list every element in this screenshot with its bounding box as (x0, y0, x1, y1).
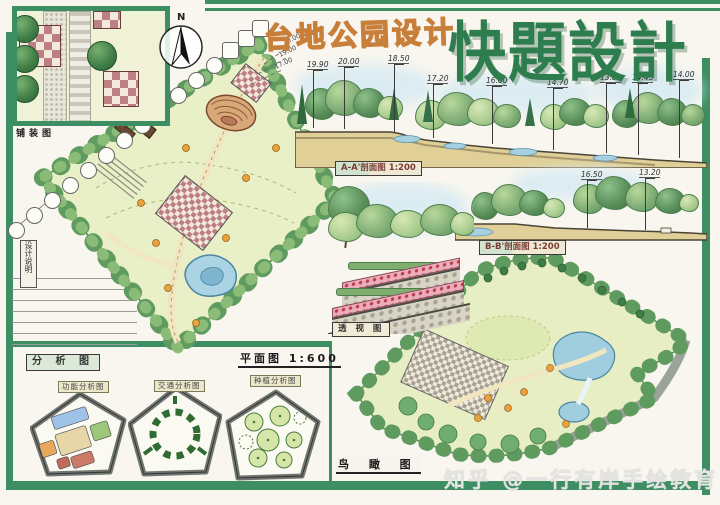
elevation-value: 16.50 (581, 170, 602, 180)
function-analysis-label: 功能分析图 (58, 381, 109, 393)
elevation-value: 20.00 (338, 57, 359, 67)
compass-n-label: N (177, 12, 185, 23)
traffic-analysis-diagram (128, 386, 222, 480)
elevation-marker: 18.50 (394, 64, 395, 132)
design-notes-label: 设计说明 (20, 240, 37, 288)
design-sheet: 20.00 19.00 17.00 铺装图 N 台地公园设计 快題設計 (0, 0, 720, 505)
elevation-marker: 16.00 (492, 86, 493, 144)
birdseye-label: 鸟 瞰 图 (336, 456, 421, 474)
section-b-label: B-B'剖面图 1:200 (479, 240, 566, 255)
street-tree-icon (206, 57, 223, 74)
street-tree-icon (26, 207, 43, 224)
plan-scale-label: 平面图 1:600 (238, 350, 341, 368)
elevation-marker: 20.00 (344, 67, 345, 129)
street-tree-icon (188, 72, 205, 89)
paving-checker (93, 11, 121, 29)
elevation-marker: 16.50 (587, 180, 588, 228)
compass: N (158, 14, 204, 72)
perspective-view (328, 182, 474, 334)
elevation-marker: 14.70 (553, 88, 554, 150)
street-tree-icon (170, 87, 187, 104)
tree-icon (87, 41, 117, 71)
section-a-label: A-A'剖面图 1:200 (335, 161, 422, 176)
watermark: 知乎 @一行有岸手绘教育 (444, 464, 718, 494)
elevation-value: 13.20 (639, 168, 660, 178)
street-tree-icon (98, 147, 115, 164)
planting-analysis-label: 种植分析图 (250, 375, 301, 387)
street-tree-icon (8, 222, 25, 239)
elevation-value: 17.20 (427, 74, 448, 84)
analysis-title: 分 析 图 (26, 354, 100, 371)
planting-analysis-diagram (224, 388, 324, 484)
paving-detail-label: 铺装图 (16, 126, 55, 139)
elevation-marker: 19.90 (313, 70, 314, 128)
street-planter-icon (222, 42, 239, 59)
big-title: 快題設計 (448, 0, 688, 94)
tree-icon (12, 45, 39, 73)
elevation-marker: 17.20 (433, 84, 434, 138)
tree-icon (12, 75, 39, 103)
compass-arrow-icon (158, 24, 204, 70)
elevation-marker: 13.20 (645, 178, 646, 230)
street-tree-icon (44, 192, 61, 209)
stepped-path (69, 11, 91, 123)
tree-icon (12, 15, 39, 43)
traffic-analysis-label: 交通分析图 (154, 380, 205, 392)
project-title: 台地公园设计 (263, 9, 456, 58)
street-tree-icon (80, 162, 97, 179)
elevation-value: 18.50 (388, 54, 409, 64)
elevation-value: 19.90 (307, 60, 328, 70)
street-tree-icon (116, 132, 133, 149)
street-tree-icon (62, 177, 79, 194)
paving-detail-plan (12, 6, 170, 126)
paving-checker (103, 71, 139, 107)
perspective-label: 透 视 图 (332, 322, 390, 337)
plan-leader-elevation: 17.00 (273, 56, 293, 71)
function-analysis-diagram (30, 392, 128, 478)
